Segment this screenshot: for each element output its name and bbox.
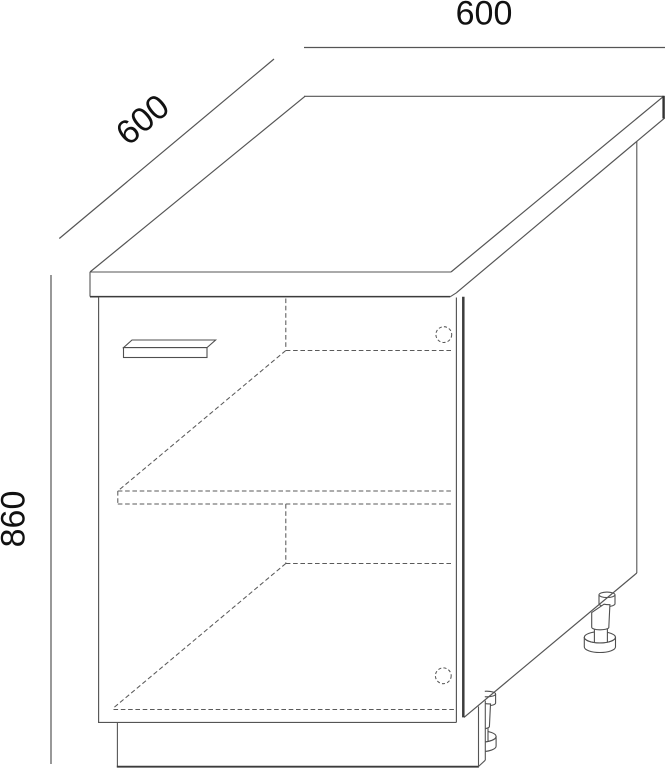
svg-text:600: 600 xyxy=(456,0,513,33)
svg-text:860: 860 xyxy=(0,491,33,548)
